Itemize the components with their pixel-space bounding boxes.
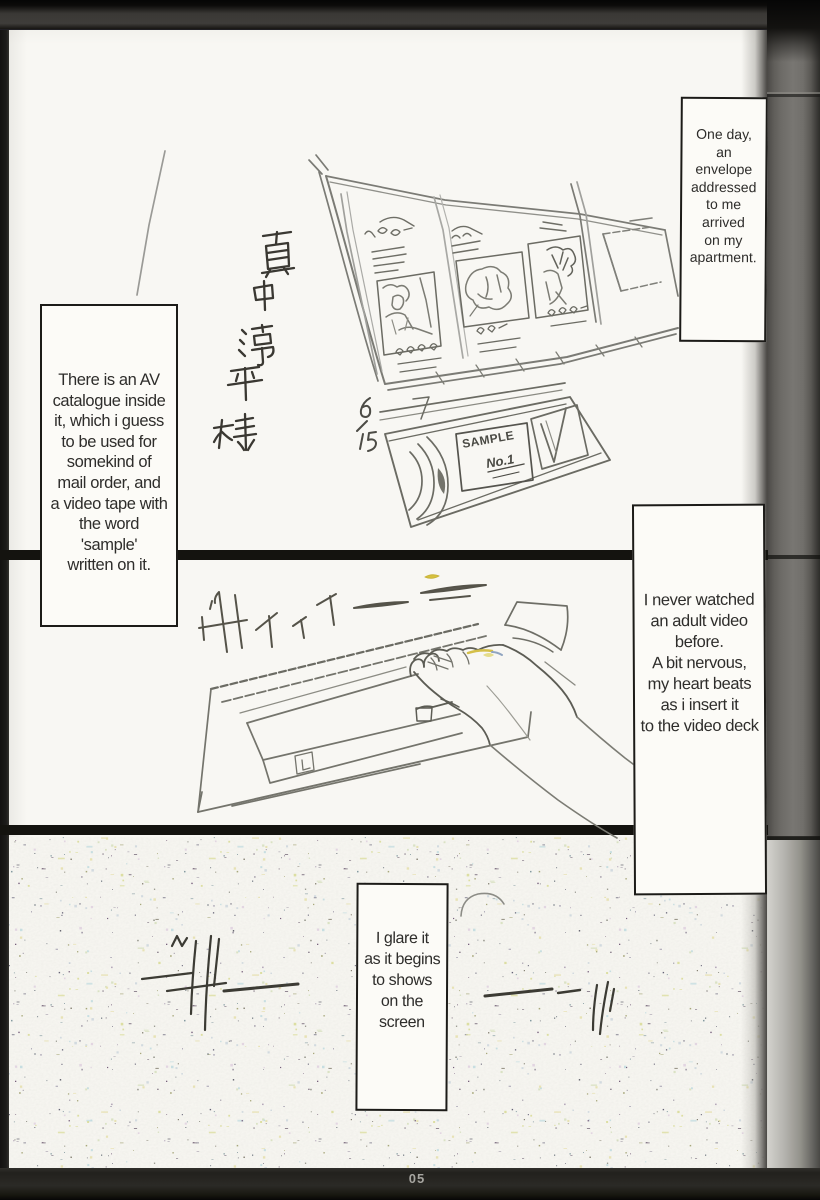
svg-text:No.1: No.1	[485, 451, 515, 471]
